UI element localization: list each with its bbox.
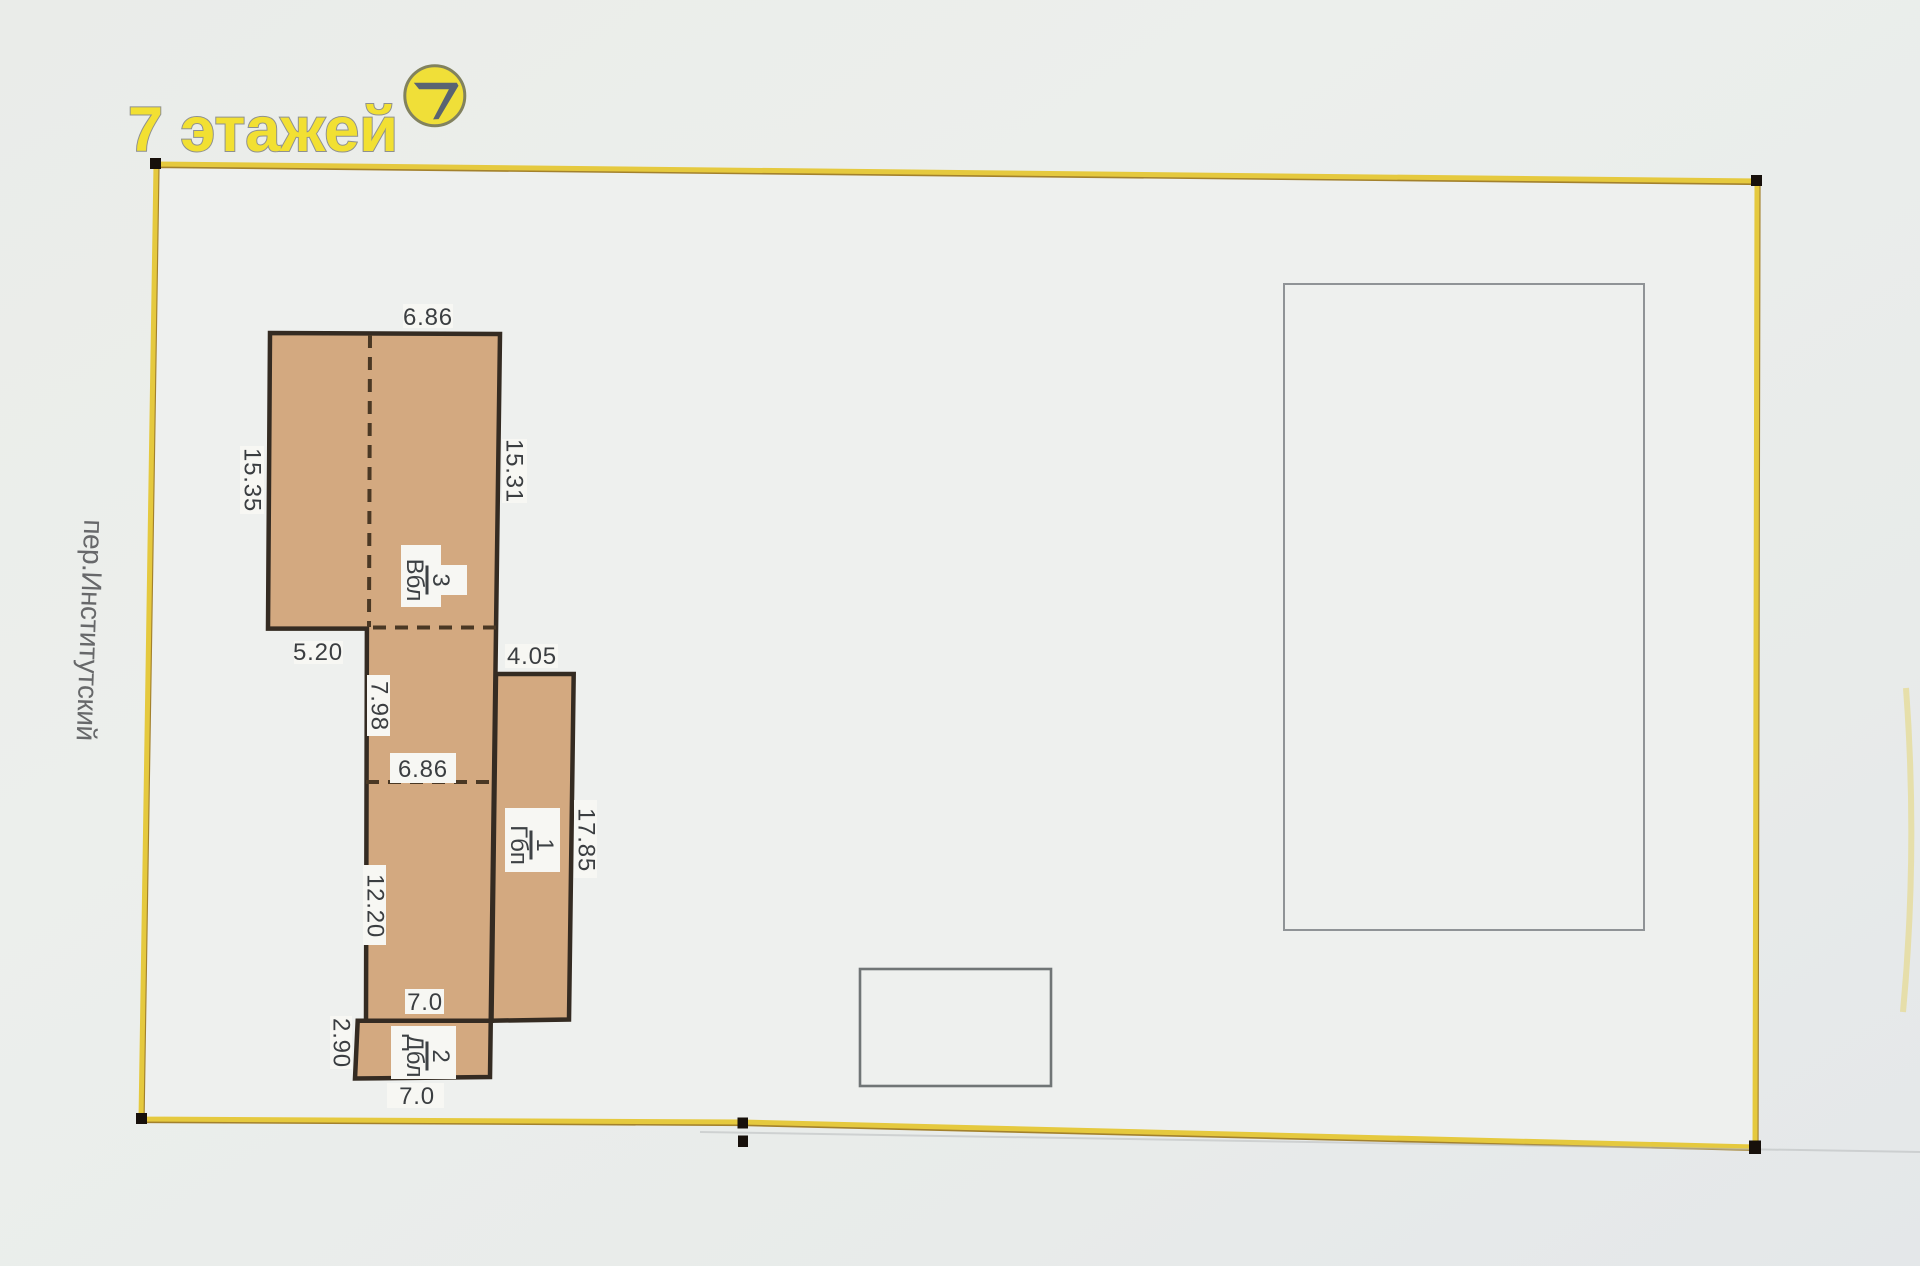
svg-text:7.98: 7.98 [366, 681, 393, 731]
svg-text:1: 1 [531, 838, 558, 851]
svg-text:17.85: 17.85 [573, 808, 600, 872]
svg-text:Вбл: Вбл [401, 559, 428, 602]
svg-text:15.35: 15.35 [239, 448, 266, 512]
svg-text:12.20: 12.20 [362, 874, 389, 938]
svg-text:6.86: 6.86 [403, 304, 453, 331]
svg-text:5.20: 5.20 [293, 639, 343, 666]
svg-text:7.0: 7.0 [407, 989, 443, 1016]
svg-text:7.0: 7.0 [399, 1083, 435, 1110]
svg-text:15.31: 15.31 [501, 439, 528, 503]
svg-text:4.05: 4.05 [507, 643, 557, 670]
svg-text:2.90: 2.90 [328, 1018, 355, 1068]
svg-text:Гбп: Гбп [505, 825, 532, 865]
svg-text:Дбл: Дбл [401, 1035, 428, 1078]
svg-text:3: 3 [427, 573, 454, 586]
svg-text:2: 2 [427, 1049, 454, 1062]
svg-text:6.86: 6.86 [398, 756, 448, 783]
svg-text:7 этажей: 7 этажей [128, 95, 398, 165]
